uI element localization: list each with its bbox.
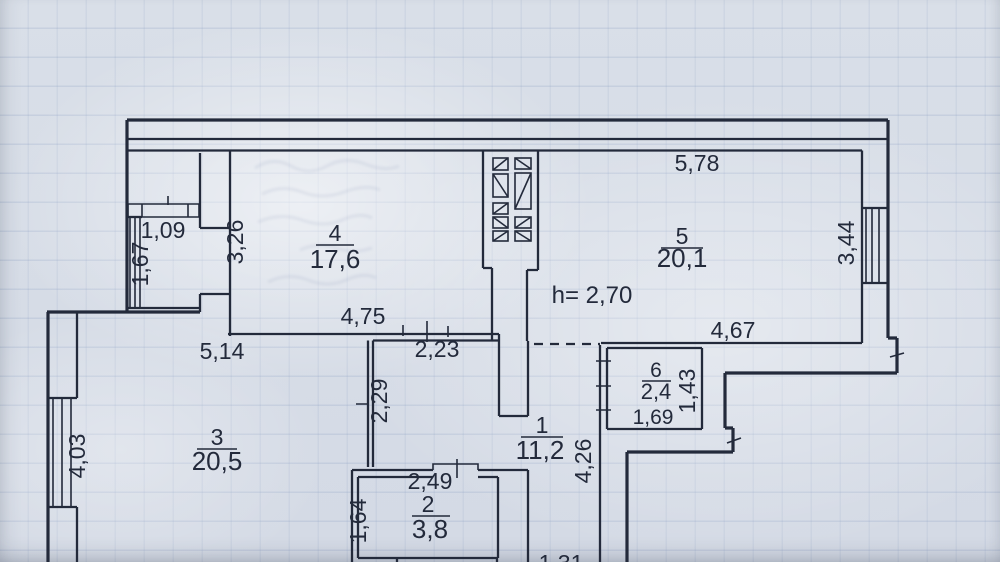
dim-1-43: 1,43	[674, 369, 700, 414]
room-3-area: 20,5	[192, 446, 243, 476]
room-5-area: 20,1	[657, 243, 708, 273]
dim-1-31-clipped: 1,31	[539, 550, 584, 562]
window-right	[866, 208, 879, 283]
dim-5-14: 5,14	[200, 338, 245, 364]
windows	[48, 204, 888, 507]
floor-plan-canvas: 4 17,6 5 20,1 3 20,5 1 11,2 2 3,8 6 2,4 …	[0, 0, 1000, 562]
dim-1-09: 1,09	[141, 217, 186, 243]
dim-2-49: 2,49	[408, 468, 453, 494]
ghost-stroke	[262, 187, 380, 196]
dim-1-64: 1,64	[345, 498, 371, 543]
dim-4-67: 4,67	[711, 317, 756, 343]
dim-2-23: 2,23	[415, 336, 460, 362]
room-1-area: 11,2	[516, 435, 565, 465]
ghost-stroke	[255, 160, 399, 171]
room-2-area: 3,8	[412, 514, 448, 544]
dim-4-75: 4,75	[341, 303, 386, 329]
dimension-labels: 1,09 1,67 3,26 5,78 3,44 4,75 2,23 5,14 …	[64, 150, 859, 562]
ghost-stroke	[258, 215, 372, 224]
room-4-number: 4	[329, 220, 342, 246]
ceiling-height-note: h= 2,70	[552, 282, 633, 309]
dim-3-26: 3,26	[222, 220, 248, 265]
room-4-area: 17,6	[310, 244, 361, 274]
dim-1-69: 1,69	[633, 406, 674, 429]
dim-5-78: 5,78	[675, 150, 720, 176]
dim-4-26: 4,26	[570, 439, 596, 484]
scanned-floor-plan-page: 4 17,6 5 20,1 3 20,5 1 11,2 2 3,8 6 2,4 …	[0, 0, 1000, 562]
vent-shaft-grid	[493, 158, 531, 241]
room-labels: 4 17,6 5 20,1 3 20,5 1 11,2 2 3,8 6 2,4 …	[192, 220, 708, 544]
window-top-band	[128, 204, 199, 217]
dim-4-03: 4,03	[64, 434, 90, 479]
room-6-area: 2,4	[641, 379, 672, 404]
dim-3-44: 3,44	[833, 220, 859, 265]
dim-1-67: 1,67	[127, 242, 153, 287]
dim-2-29: 2,29	[366, 379, 392, 424]
ghost-stroke	[268, 275, 376, 284]
